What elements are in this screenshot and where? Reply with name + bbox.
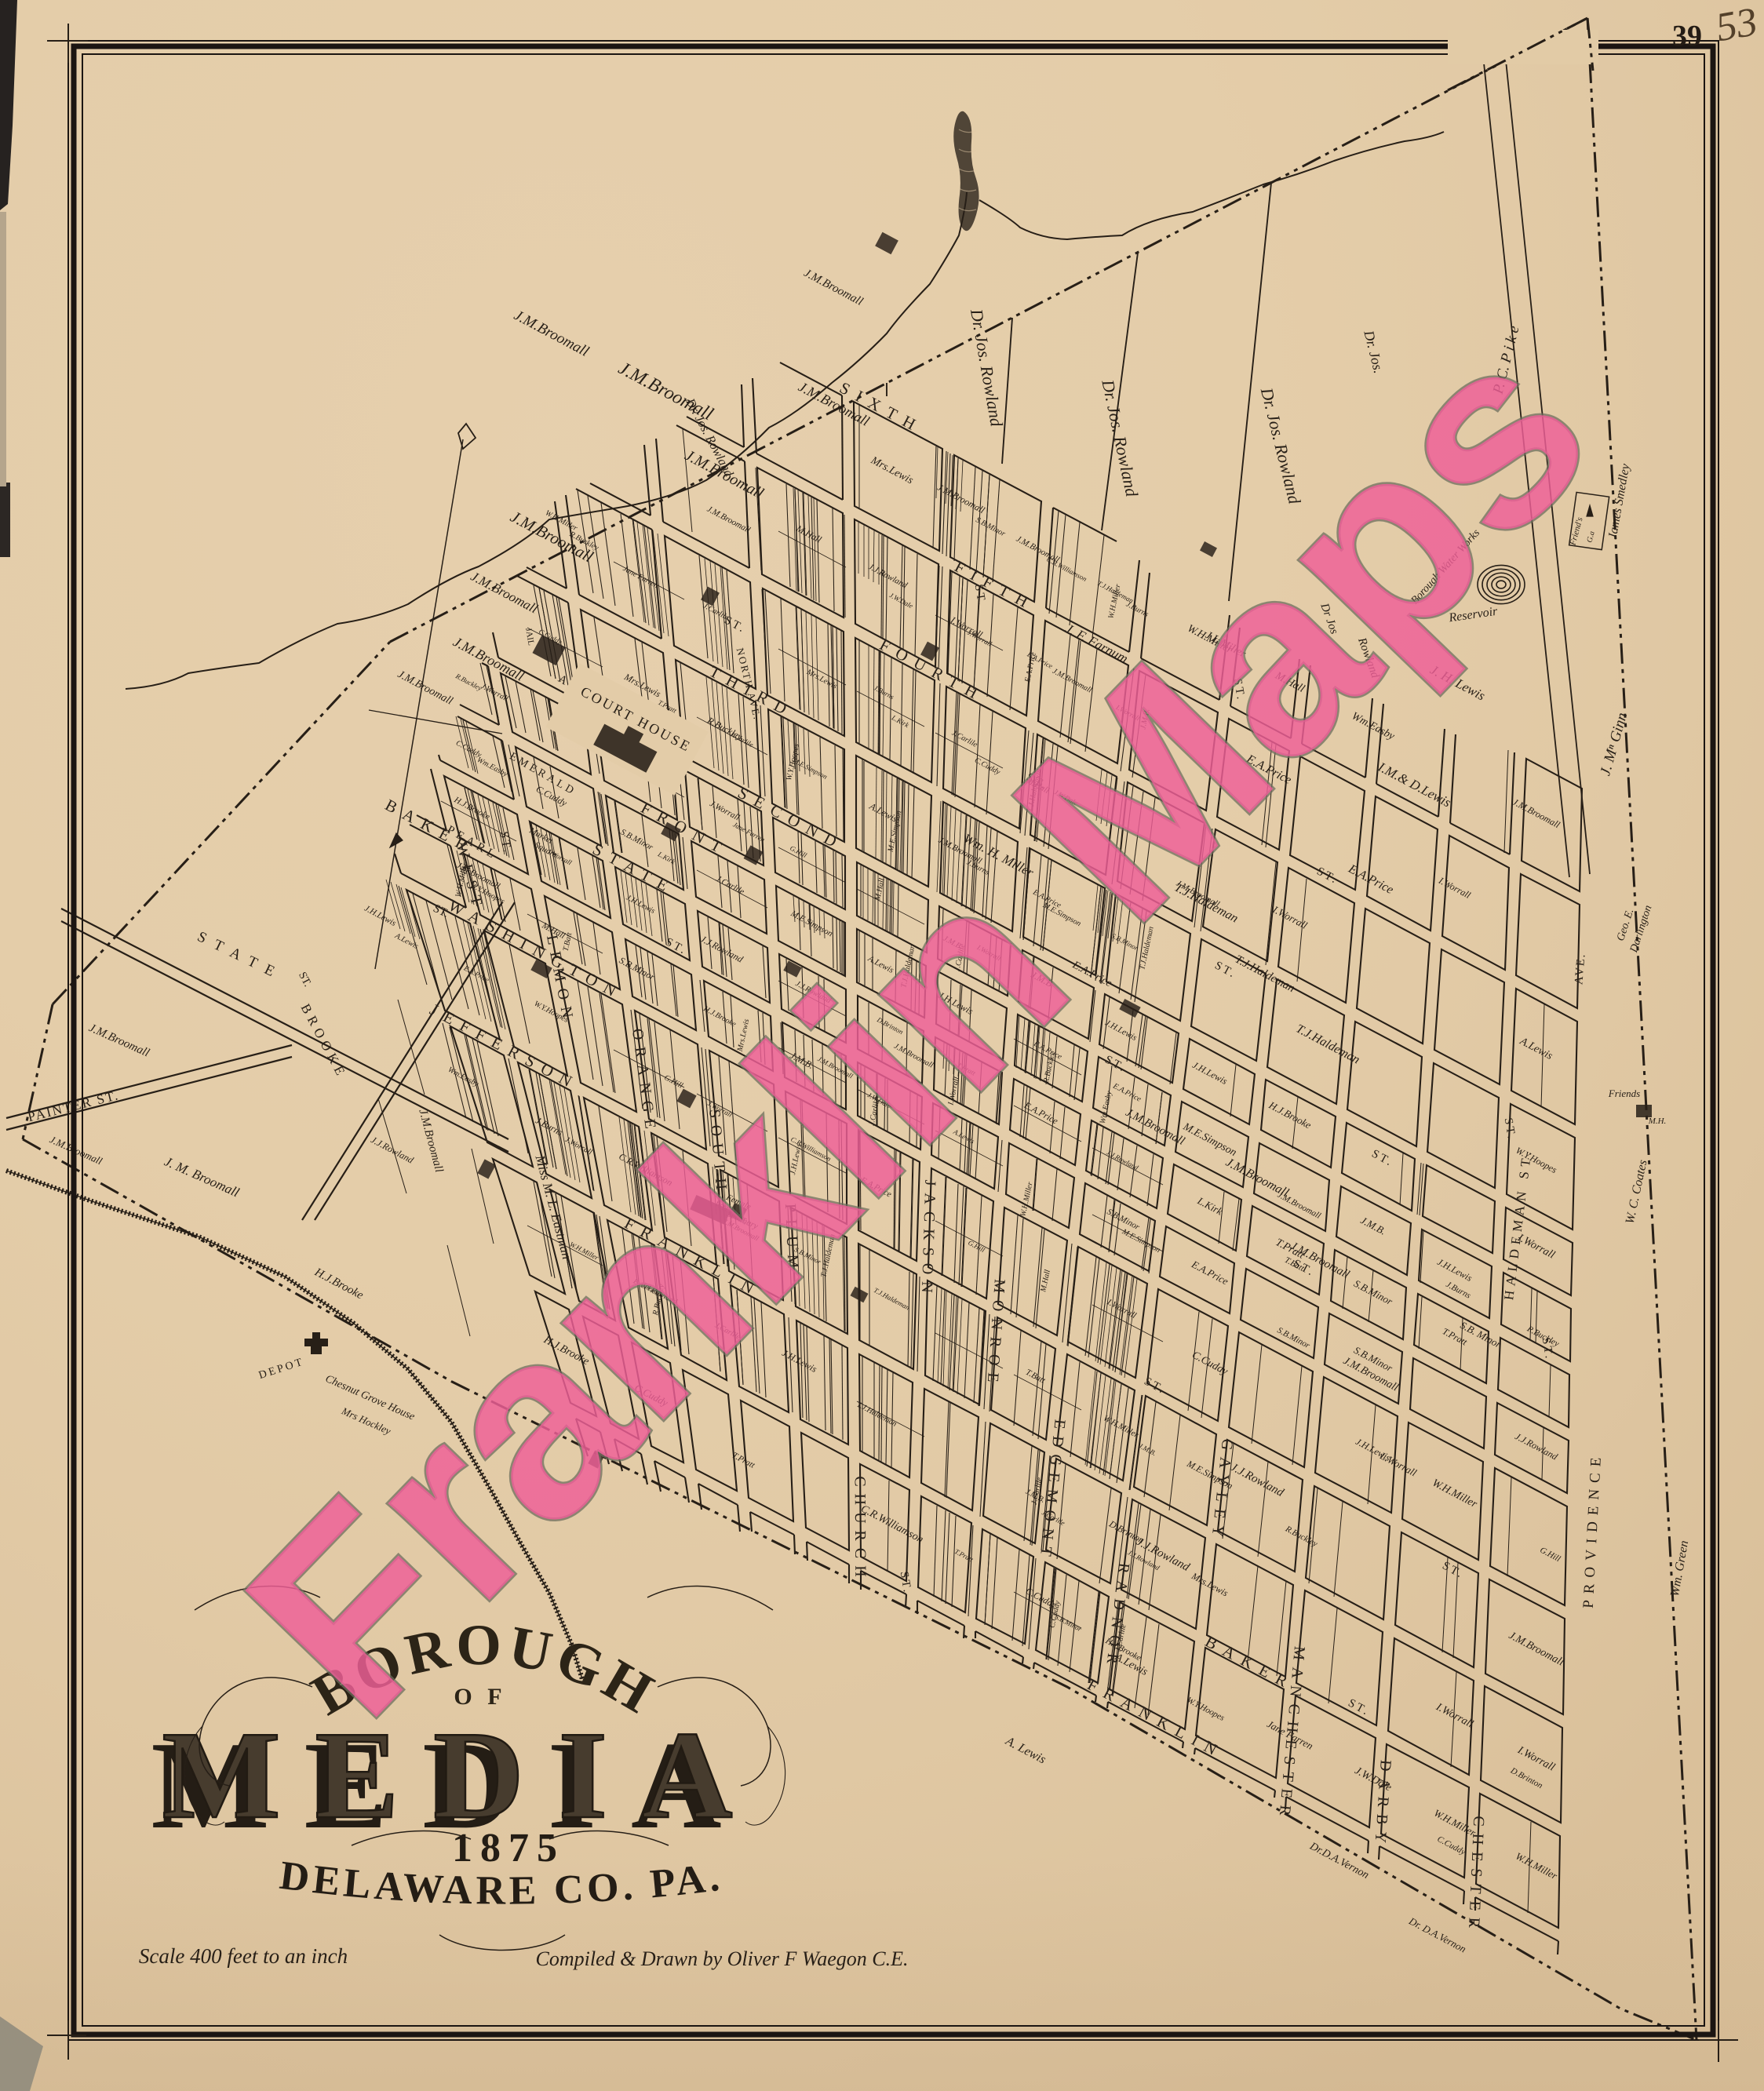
- svg-text:39: 39: [1672, 20, 1702, 53]
- svg-text:Friends: Friends: [1608, 1087, 1640, 1099]
- svg-text:CHURCH: CHURCH: [851, 1476, 869, 1583]
- svg-text:Compiled & Drawn by Oliver F W: Compiled & Drawn by Oliver F Waegon C.E.: [536, 1947, 909, 1970]
- svg-text:53: 53: [1713, 0, 1761, 50]
- svg-text:MEDIA: MEDIA: [162, 1705, 767, 1845]
- svg-text:1875: 1875: [452, 1826, 565, 1871]
- svg-text:M.H.: M.H.: [1648, 1117, 1667, 1126]
- svg-text:Scale 400 feet to an inch: Scale 400 feet to an inch: [139, 1944, 348, 1968]
